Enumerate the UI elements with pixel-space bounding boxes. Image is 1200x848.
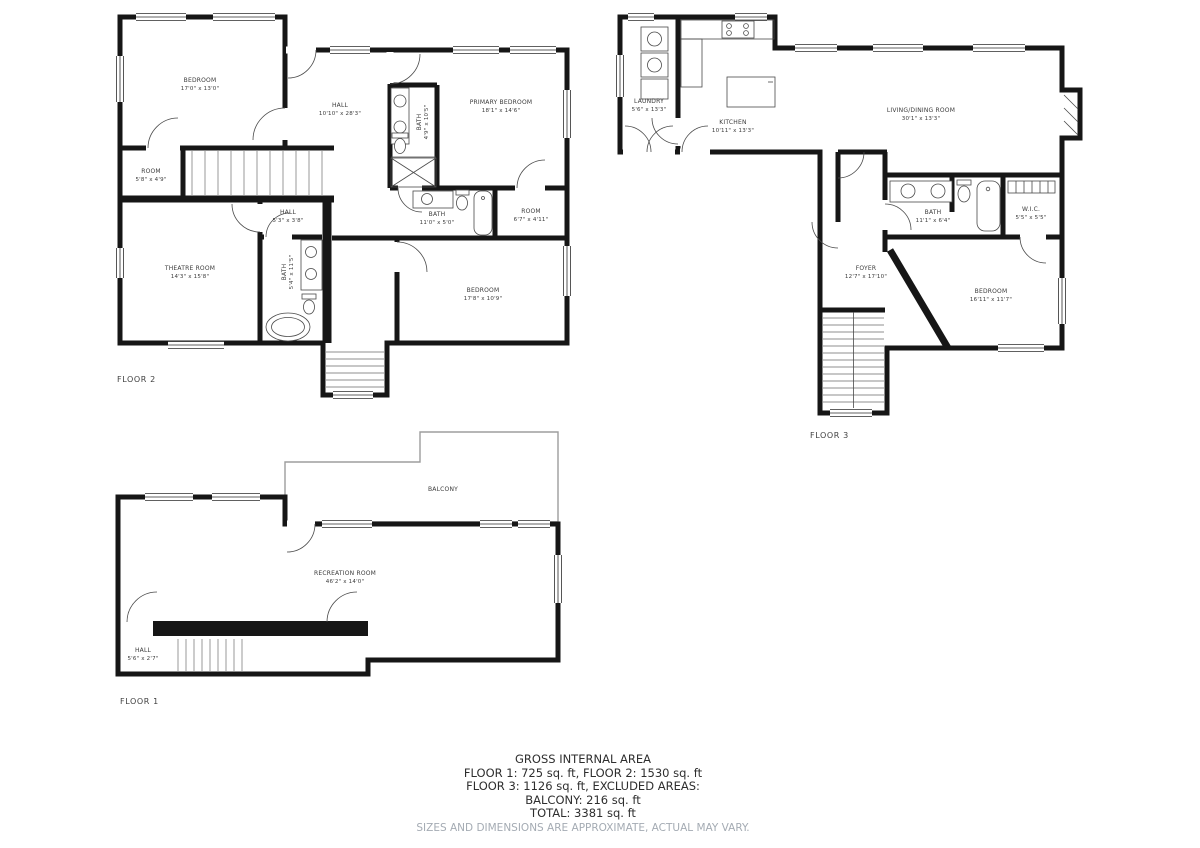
- room-label: HALL: [332, 102, 349, 109]
- area-line-total: TOTAL: 3381 sq. ft: [0, 807, 1166, 821]
- room-label: FOYER: [856, 265, 876, 272]
- floor2-stairs: [192, 151, 384, 387]
- kitchen-island: [727, 77, 775, 107]
- svg-text:BATH: BATH: [281, 264, 288, 281]
- laundry-cabinet: [641, 79, 668, 99]
- room-dims: 17'8" x 10'9": [464, 296, 502, 302]
- floor3-walls: [620, 17, 1080, 413]
- toilet: [457, 196, 468, 210]
- floor-1-label: FLOOR 1: [120, 697, 159, 706]
- closet-rod: [1008, 181, 1055, 193]
- room-dims: 5'6" x 13'3": [632, 107, 667, 113]
- area-line-balcony: BALCONY: 216 sq. ft: [0, 794, 1166, 808]
- area-summary: GROSS INTERNAL AREA FLOOR 1: 725 sq. ft,…: [0, 753, 1166, 835]
- gross-internal-area-title: GROSS INTERNAL AREA: [0, 753, 1166, 767]
- floor-2-label: FLOOR 2: [117, 375, 156, 384]
- floor-1-plan: BALCONY RECREATION ROOM 46'2" x 14'0" HA…: [110, 420, 580, 710]
- sink: [931, 184, 945, 198]
- toilet: [302, 294, 316, 299]
- room-dims: 10'11" x 13'3": [712, 128, 754, 134]
- toilet: [456, 190, 469, 195]
- room-label: W.I.C.: [1022, 206, 1040, 213]
- floorplan-page: BEDROOM 17'0" x 13'0" HALL 10'10" x 28'3…: [0, 0, 1200, 848]
- bathtub: [977, 181, 1000, 231]
- room-label: BATH: [925, 209, 942, 216]
- vanity: [413, 191, 453, 208]
- area-line-floors-1-2: FLOOR 1: 725 sq. ft, FLOOR 2: 1530 sq. f…: [0, 767, 1166, 781]
- room-label-rotated: BATH 4'9" x 10'5": [416, 105, 430, 140]
- svg-text:5'4" x 11'5": 5'4" x 11'5": [289, 255, 295, 290]
- fireplace: [1064, 95, 1078, 135]
- room-label: BEDROOM: [975, 288, 1008, 295]
- room-dims: 10'10" x 28'3": [319, 111, 361, 117]
- room-dims: 46'2" x 14'0": [326, 579, 364, 585]
- floor1-stairs: [178, 639, 242, 671]
- floor-2-plan: BEDROOM 17'0" x 13'0" HALL 10'10" x 28'3…: [110, 5, 580, 405]
- room-dims: 17'0" x 13'0": [181, 86, 219, 92]
- room-label: HALL: [135, 647, 152, 654]
- kitchen-counter: [681, 20, 774, 39]
- room-dims: 5'5" x 5'5": [1015, 215, 1046, 221]
- sink: [394, 95, 406, 107]
- room-dims: 5'3" x 3'8": [272, 218, 303, 224]
- room-dims: 11'0" x 5'0": [420, 220, 455, 226]
- closet: [391, 158, 436, 187]
- sink: [306, 269, 317, 280]
- room-label: BALCONY: [428, 486, 458, 493]
- stove: [722, 21, 754, 38]
- svg-text:4'9" x 10'5": 4'9" x 10'5": [424, 105, 430, 140]
- room-label: LIVING/DINING ROOM: [887, 107, 955, 114]
- room-label: ROOM: [141, 168, 161, 175]
- floor2-walls: [120, 17, 567, 395]
- toilet: [958, 186, 970, 202]
- floor-3-label: FLOOR 3: [810, 431, 849, 440]
- kitchen-counter: [681, 39, 702, 87]
- floor1-windows: [145, 494, 562, 604]
- room-label: BEDROOM: [467, 287, 500, 294]
- room-dims: 11'1" x 6'4": [916, 218, 951, 224]
- room-label: BEDROOM: [184, 77, 217, 84]
- sink: [306, 247, 317, 258]
- room-dims: 30'1" x 13'3": [902, 116, 940, 122]
- room-label: HALL: [280, 209, 297, 216]
- room-dims: 16'11" x 11'7": [970, 297, 1012, 303]
- toilet: [392, 133, 408, 138]
- room-label: LAUNDRY: [634, 98, 664, 105]
- floor-3-plan: LAUNDRY 5'6" x 13'3" KITCHEN 10'11" x 13…: [600, 5, 1100, 435]
- room-label: PRIMARY BEDROOM: [470, 99, 533, 106]
- room-label-rotated: BATH 5'4" x 11'5": [281, 255, 295, 290]
- washer: [641, 27, 668, 51]
- room-dims: 12'7" x 17'10": [845, 274, 887, 280]
- dryer: [641, 53, 668, 77]
- room-dims: 5'8" x 4'9": [135, 177, 166, 183]
- room-dims: 6'7" x 4'11": [514, 217, 549, 223]
- room-label: THEATRE ROOM: [164, 265, 215, 272]
- room-dims: 18'1" x 14'6": [482, 108, 520, 114]
- bathtub: [474, 191, 492, 235]
- disclaimer-text: SIZES AND DIMENSIONS ARE APPROXIMATE, AC…: [0, 821, 1166, 835]
- balcony-outline: [285, 432, 558, 522]
- sink: [422, 194, 433, 205]
- sink: [901, 184, 915, 198]
- room-label: BATH: [429, 211, 446, 218]
- toilet: [395, 139, 406, 154]
- area-line-floor-3-excluded: FLOOR 3: 1126 sq. ft, EXCLUDED AREAS:: [0, 780, 1166, 794]
- sink: [394, 121, 406, 133]
- room-label: RECREATION ROOM: [314, 570, 376, 577]
- floor2-fixtures: [266, 88, 492, 341]
- toilet: [304, 300, 315, 314]
- toilet: [957, 180, 971, 185]
- floor3-stairs: [823, 312, 884, 408]
- room-dims: 14'3" x 15'8": [171, 274, 209, 280]
- stair-bulkhead: [153, 621, 368, 636]
- room-dims: 5'6" x 2'7": [127, 656, 158, 662]
- svg-text:BATH: BATH: [416, 114, 423, 131]
- room-label: KITCHEN: [719, 119, 746, 126]
- room-label: ROOM: [521, 208, 541, 215]
